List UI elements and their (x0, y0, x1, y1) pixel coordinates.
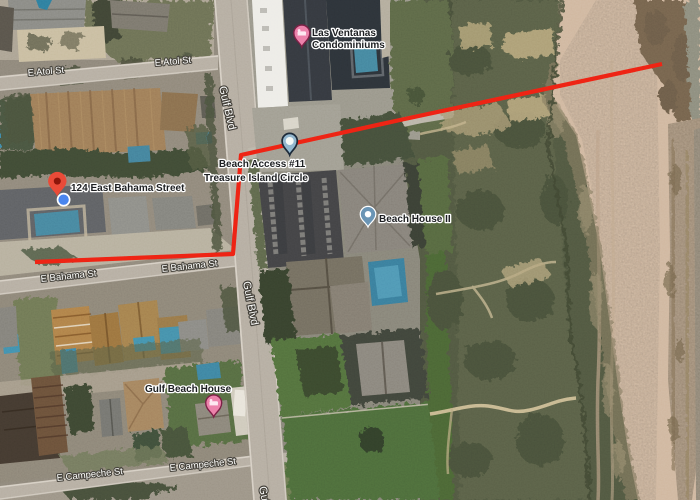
svg-text:Condominiums: Condominiums (312, 40, 385, 51)
svg-text:Gulf Beach House: Gulf Beach House (145, 384, 232, 395)
svg-text:Beach Access #11: Beach Access #11 (219, 159, 306, 170)
svg-text:Las Ventanas: Las Ventanas (312, 28, 376, 39)
svg-text:Beach House II: Beach House II (379, 214, 451, 225)
svg-text:124 East Bahama Street: 124 East Bahama Street (71, 183, 185, 194)
svg-text:Treasure Island Circle: Treasure Island Circle (204, 173, 308, 184)
